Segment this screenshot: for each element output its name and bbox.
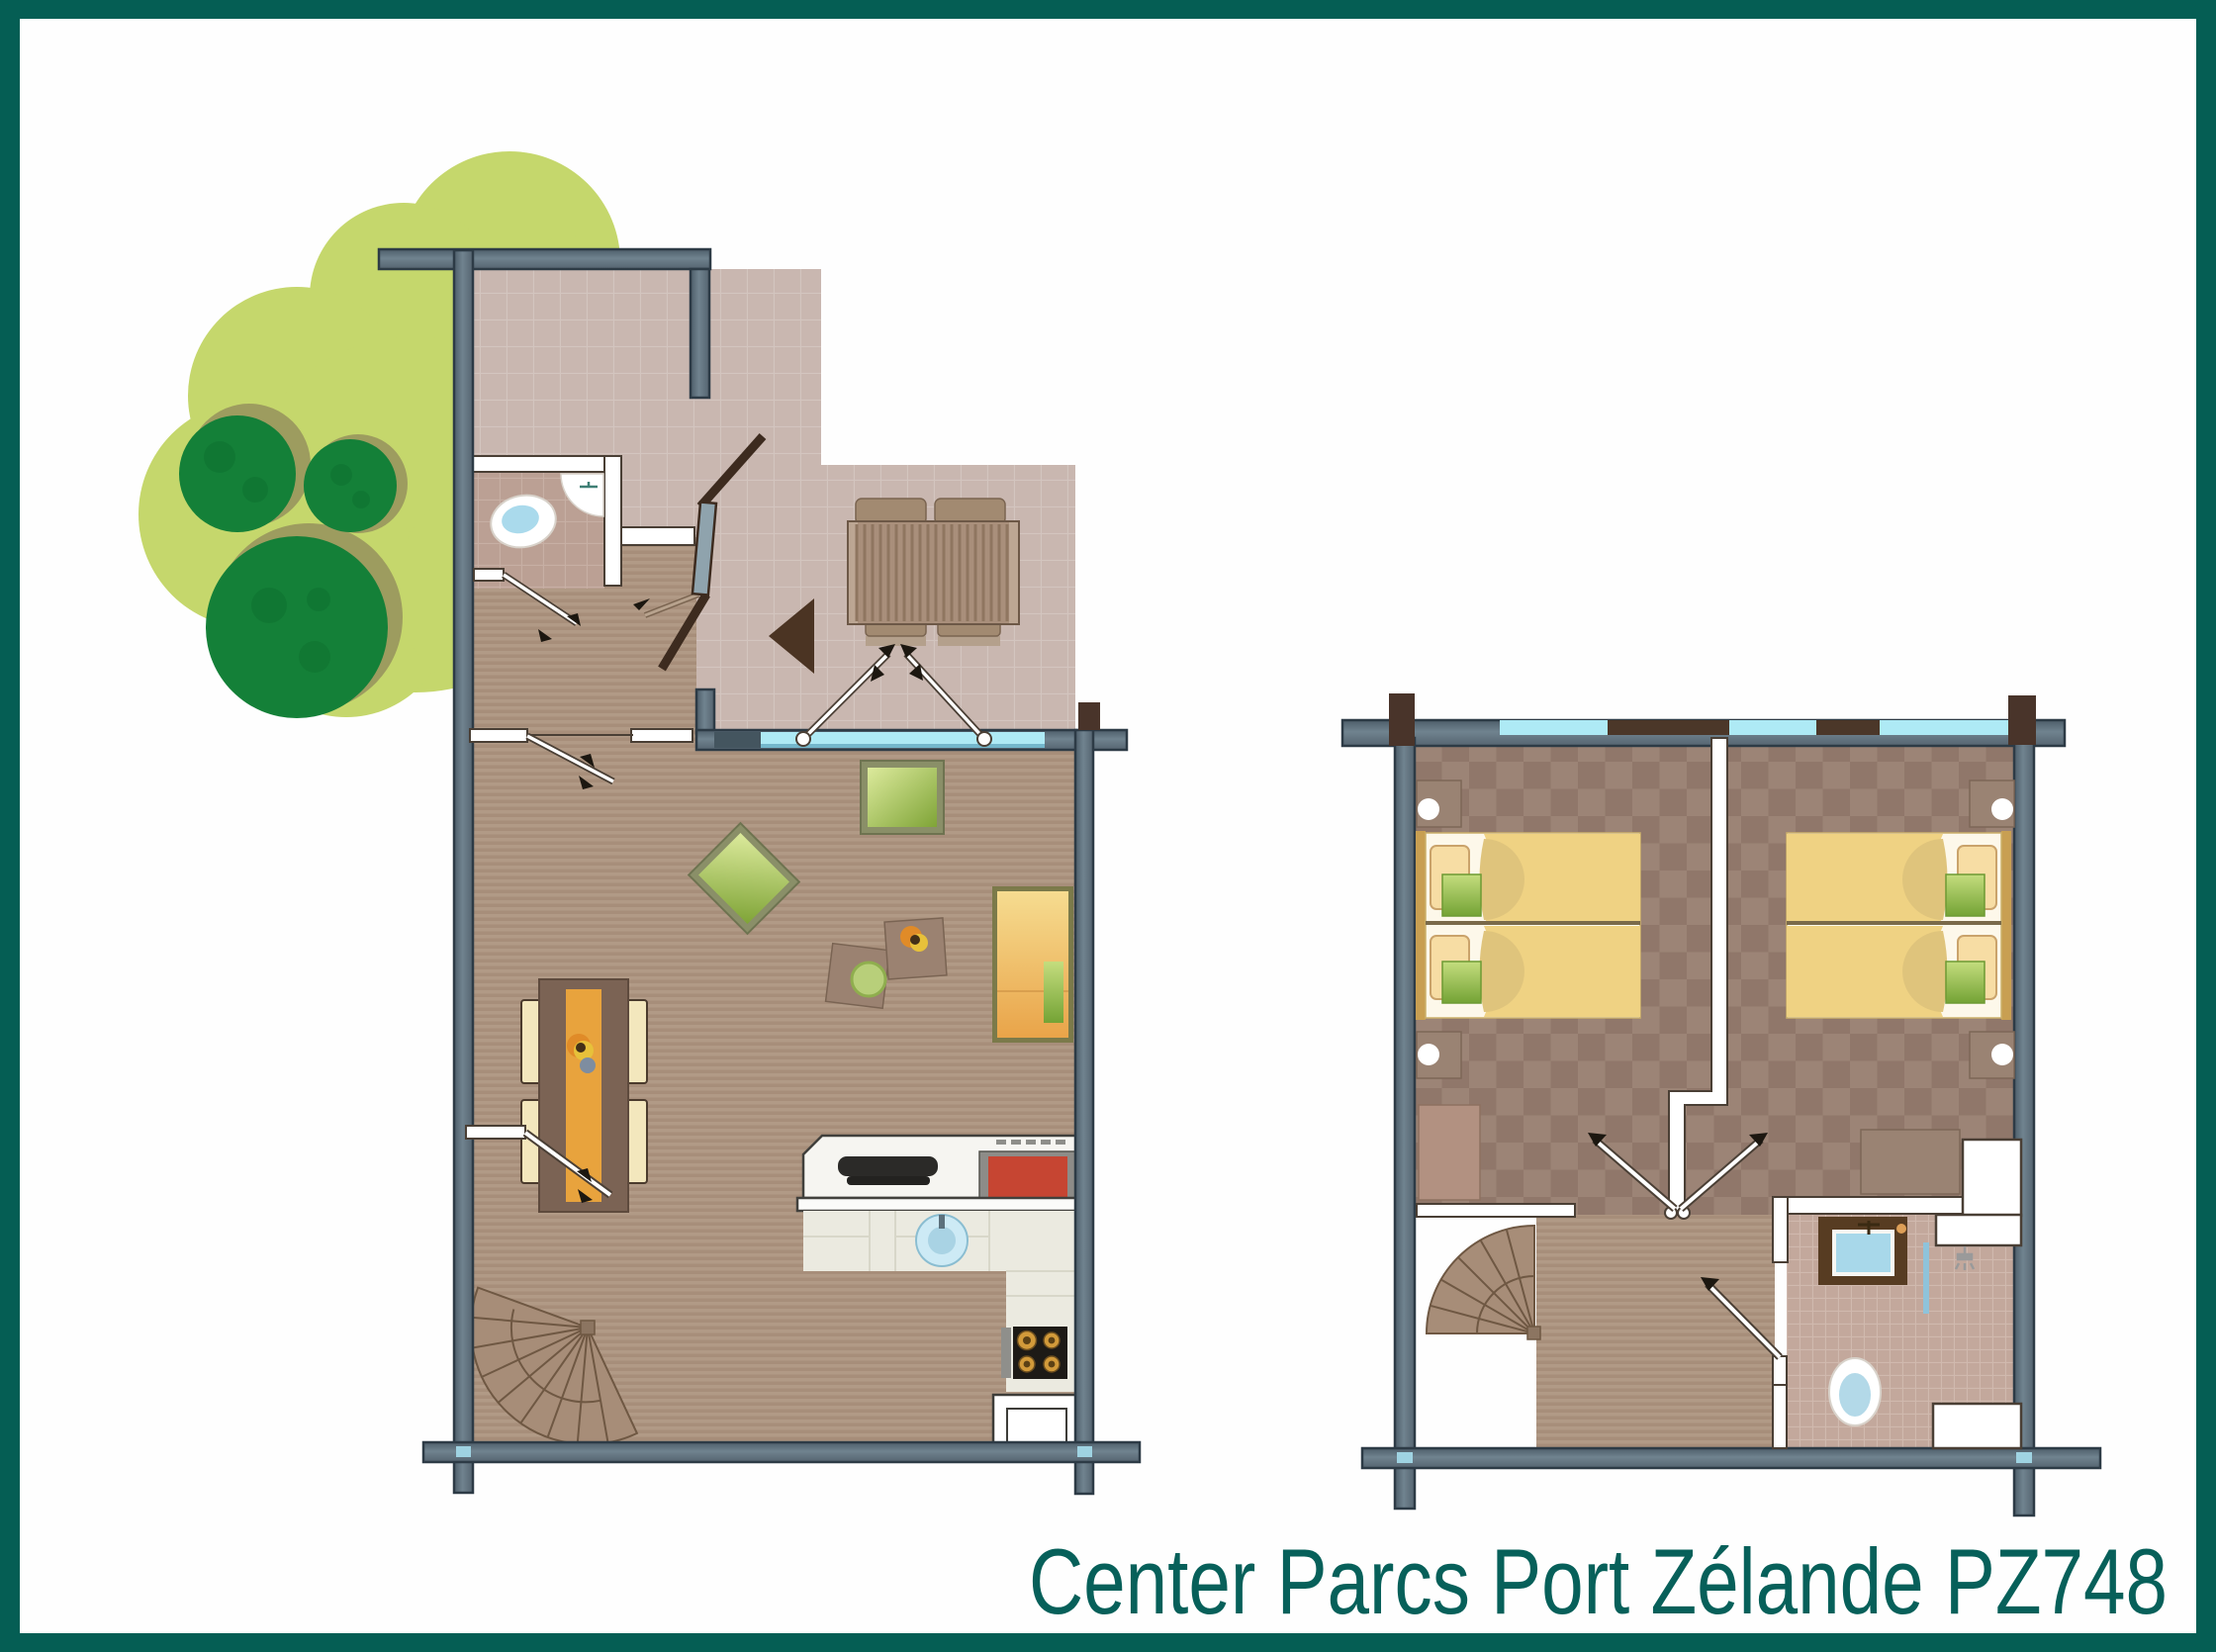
svg-text:Center Parcs Port Zélande PZ74: Center Parcs Port Zélande PZ748 — [1029, 1529, 2168, 1633]
